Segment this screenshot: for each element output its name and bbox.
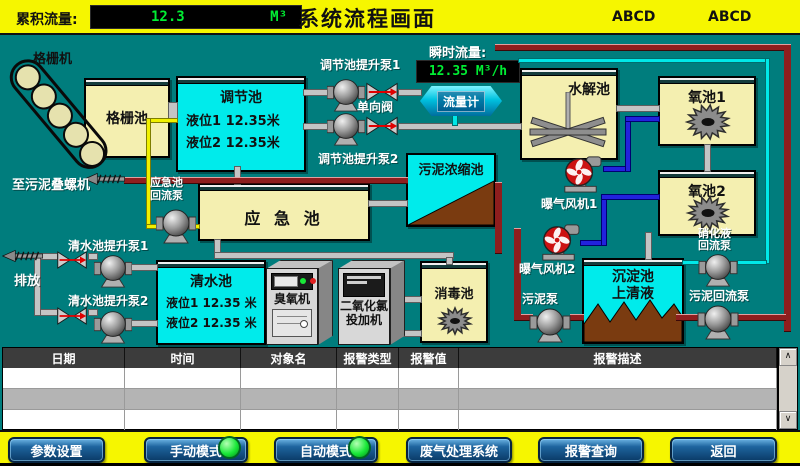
scroll-down-button[interactable]: ∨ bbox=[779, 411, 797, 429]
label-line: 应急池 bbox=[150, 176, 183, 189]
cabinet-side bbox=[318, 260, 333, 345]
tag-abcd-1: ABCD bbox=[612, 9, 655, 25]
oxygen-pool-1: 氧池1 bbox=[658, 76, 756, 146]
nitri-return-pump-label: 硝化液 回流泵 bbox=[698, 228, 731, 252]
qs-pump2-icon[interactable] bbox=[94, 306, 132, 344]
pipe-nitri-right bbox=[765, 58, 770, 264]
qs-pump1-label: 清水池提升泵1 bbox=[68, 237, 148, 254]
cumulative-flow-label: 累积流量: bbox=[16, 9, 78, 29]
pool-lid bbox=[660, 172, 754, 178]
pipe-shuijie-yang1 bbox=[616, 105, 660, 112]
grid-machine-label: 格栅机 bbox=[33, 48, 72, 67]
instant-flow-label: 瞬时流量: bbox=[429, 42, 486, 61]
table-row[interactable] bbox=[3, 410, 777, 431]
flow-arrow-left-icon bbox=[84, 170, 126, 188]
page-title: 系统流程画面 bbox=[298, 3, 436, 33]
sludge-return-pump-icon[interactable] bbox=[697, 300, 739, 340]
chlorine-dioxide-label: 二氧化氯 投加机 bbox=[339, 299, 389, 327]
aeration-blower2-icon[interactable] bbox=[535, 223, 583, 261]
hmi-screen: 累积流量: 12.3 M³ 系统流程画面 ABCD ABCD bbox=[0, 0, 800, 466]
tiaojie-pool: 调节池 液位1 12.35米 液位2 12.35米 bbox=[176, 76, 306, 172]
aeration-blower1-icon[interactable] bbox=[557, 155, 605, 193]
sludge-fill bbox=[584, 298, 682, 342]
emergency-return-pump-icon[interactable] bbox=[156, 204, 196, 244]
pipe bbox=[446, 257, 453, 265]
label-line: 沉淀池 bbox=[584, 269, 682, 286]
table-scrollbar[interactable]: ∧ ∨ bbox=[778, 347, 798, 430]
pipe bbox=[737, 260, 767, 265]
tiaojie-level2: 液位2 12.35米 bbox=[178, 129, 304, 151]
qs-pump1-icon[interactable] bbox=[94, 250, 132, 288]
sedimentation-pool: 沉淀池 上清液 bbox=[582, 258, 684, 344]
pool-lid bbox=[158, 262, 264, 268]
pool-lid bbox=[522, 70, 616, 76]
button-label: 参数设置 bbox=[30, 441, 82, 460]
pipe bbox=[398, 123, 522, 130]
sludge-return-pump-label: 污泥回流泵 bbox=[689, 287, 749, 304]
qs-pump2-label: 清水池提升泵2 bbox=[68, 292, 148, 309]
top-bar: 累积流量: 12.3 M³ 系统流程画面 ABCD ABCD bbox=[0, 0, 800, 35]
button-label: 自动模式 bbox=[300, 441, 352, 460]
manual-mode-button[interactable]: 手动模式 bbox=[144, 437, 248, 463]
button-label: 报警查询 bbox=[565, 441, 617, 460]
label-line: 回流泵 bbox=[698, 240, 731, 252]
pool-lid bbox=[200, 185, 368, 191]
chlorine-dioxide-doser[interactable]: 二氧化氯 投加机 bbox=[338, 260, 406, 345]
pipe bbox=[495, 182, 502, 254]
col-time: 时间 bbox=[125, 348, 241, 368]
nitri-return-pump-icon[interactable] bbox=[697, 249, 739, 287]
label-line: 投加机 bbox=[339, 313, 389, 327]
alarm-table: 日期 时间 对象名 报警类型 报警值 报警描述 bbox=[2, 347, 778, 430]
auto-mode-led bbox=[348, 436, 371, 459]
col-date: 日期 bbox=[3, 348, 125, 368]
pool-lid bbox=[86, 80, 168, 86]
col-alarm-value: 报警值 bbox=[399, 348, 459, 368]
col-alarm-desc: 报警描述 bbox=[459, 348, 777, 368]
table-row[interactable] bbox=[3, 389, 777, 410]
aeration-blower1-label: 曝气风机1 bbox=[541, 195, 597, 212]
table-row[interactable] bbox=[3, 368, 777, 389]
return-button[interactable]: 返回 bbox=[670, 437, 777, 463]
param-settings-button[interactable]: 参数设置 bbox=[8, 437, 105, 463]
pool-lid bbox=[178, 78, 304, 84]
sludge-thickener-pool: 污泥浓缩池 bbox=[406, 153, 496, 227]
ozone-machine[interactable]: 臭氧机 bbox=[266, 260, 334, 345]
emergency-pool: 应 急 池 bbox=[198, 183, 370, 241]
pipe-sludge-right bbox=[784, 44, 791, 332]
pipe-emergency bbox=[146, 118, 151, 228]
tj-pump2-label: 调节池提升泵2 bbox=[318, 150, 398, 167]
to-screw-label: 至污泥叠螺机 bbox=[12, 174, 90, 193]
button-label: 废气处理系统 bbox=[420, 441, 498, 460]
cabinet-front: 二氧化氯 投加机 bbox=[338, 268, 390, 345]
waste-gas-system-button[interactable]: 废气处理系统 bbox=[406, 437, 512, 463]
shuijie-pool: 水解池 bbox=[520, 68, 618, 160]
cabinet-display bbox=[343, 273, 385, 297]
pipe bbox=[570, 314, 584, 321]
pipe-air2 bbox=[601, 194, 660, 200]
clear-water-level2: 液位2 12.35 米 bbox=[158, 311, 264, 331]
pool-lid bbox=[422, 263, 486, 269]
sludge-pump-label: 污泥泵 bbox=[522, 290, 558, 307]
scroll-up-button[interactable]: ∧ bbox=[779, 348, 797, 366]
flow-meter[interactable]: 流量计 bbox=[420, 86, 502, 116]
emergency-pool-title: 应 急 池 bbox=[200, 205, 368, 229]
tag-abcd-2: ABCD bbox=[708, 9, 751, 25]
alarm-query-button[interactable]: 报警查询 bbox=[538, 437, 644, 463]
ozone-machine-label: 臭氧机 bbox=[267, 292, 317, 306]
instant-flow-display: 12.35 M³/h bbox=[416, 60, 520, 83]
tj-pump1-label: 调节池提升泵1 bbox=[320, 56, 400, 73]
col-alarm-type: 报警类型 bbox=[337, 348, 399, 368]
auto-mode-button[interactable]: 自动模式 bbox=[274, 437, 378, 463]
emergency-return-pump-label: 应急池 回流泵 bbox=[150, 176, 183, 202]
mixer-icon bbox=[523, 92, 617, 158]
sludge-pump-icon[interactable] bbox=[529, 303, 571, 343]
pipe bbox=[398, 89, 422, 96]
pipe-sludge-top bbox=[495, 44, 790, 51]
clear-water-pool: 清水池 液位1 12.35 米 液位2 12.35 米 bbox=[156, 260, 266, 345]
clear-water-level1: 液位1 12.35 米 bbox=[158, 291, 264, 311]
gear-icon bbox=[672, 100, 744, 144]
button-label: 手动模式 bbox=[170, 441, 222, 460]
label-line: 回流泵 bbox=[150, 189, 183, 202]
pipe-air1 bbox=[625, 118, 631, 172]
label-line: 二氧化氯 bbox=[339, 299, 389, 313]
flow-meter-label: 流量计 bbox=[437, 91, 485, 112]
discharge-label: 排放 bbox=[14, 270, 40, 289]
pipe bbox=[738, 314, 786, 321]
pipe-yang1-yang2 bbox=[704, 144, 711, 172]
pipe-to-xiaodu bbox=[214, 252, 454, 259]
cumulative-flow-unit: M³ bbox=[270, 9, 287, 25]
alarm-table-header: 日期 时间 对象名 报警类型 报警值 报警描述 bbox=[3, 348, 777, 368]
col-object: 对象名 bbox=[241, 348, 337, 368]
gear-icon bbox=[427, 304, 483, 338]
check-valve-label: 单向阀 bbox=[357, 98, 393, 115]
disinfection-title: 消毒池 bbox=[422, 283, 486, 302]
pool-lid bbox=[660, 78, 754, 84]
pool-lid bbox=[584, 260, 682, 266]
check-valve2-icon[interactable] bbox=[365, 115, 399, 137]
button-label: 返回 bbox=[710, 441, 736, 460]
tiaojie-title: 调节池 bbox=[178, 87, 304, 107]
pipe-yang2-chendian bbox=[645, 232, 652, 260]
cabinet-front: 臭氧机 bbox=[266, 268, 318, 345]
cabinet-display bbox=[271, 273, 313, 290]
pipe-air2 bbox=[601, 196, 607, 246]
cumulative-flow-display: 12.3 M³ bbox=[90, 5, 302, 29]
manual-mode-led bbox=[218, 436, 241, 459]
discharge-arrow-icon bbox=[2, 247, 44, 265]
aeration-blower2-label: 曝气风机2 bbox=[519, 260, 575, 277]
pipe bbox=[303, 123, 330, 130]
pipe bbox=[303, 89, 330, 96]
qs-valve2-icon[interactable] bbox=[56, 306, 88, 326]
tiaojie-level1: 液位1 12.35米 bbox=[178, 107, 304, 129]
pipe-yingji-nongsuo bbox=[368, 200, 408, 207]
clear-water-title: 清水池 bbox=[158, 271, 264, 291]
pipe-nitri-top bbox=[518, 58, 770, 63]
cabinet-door bbox=[272, 309, 312, 337]
disinfection-pool: 消毒池 bbox=[420, 261, 488, 343]
cumulative-flow-value: 12.3 bbox=[151, 9, 185, 25]
bottom-bar: 参数设置 手动模式 自动模式 废气处理系统 报警查询 返回 bbox=[0, 430, 800, 466]
cabinet-side bbox=[390, 260, 405, 345]
sludge-fill bbox=[408, 173, 494, 225]
pipe-air1 bbox=[625, 116, 660, 122]
